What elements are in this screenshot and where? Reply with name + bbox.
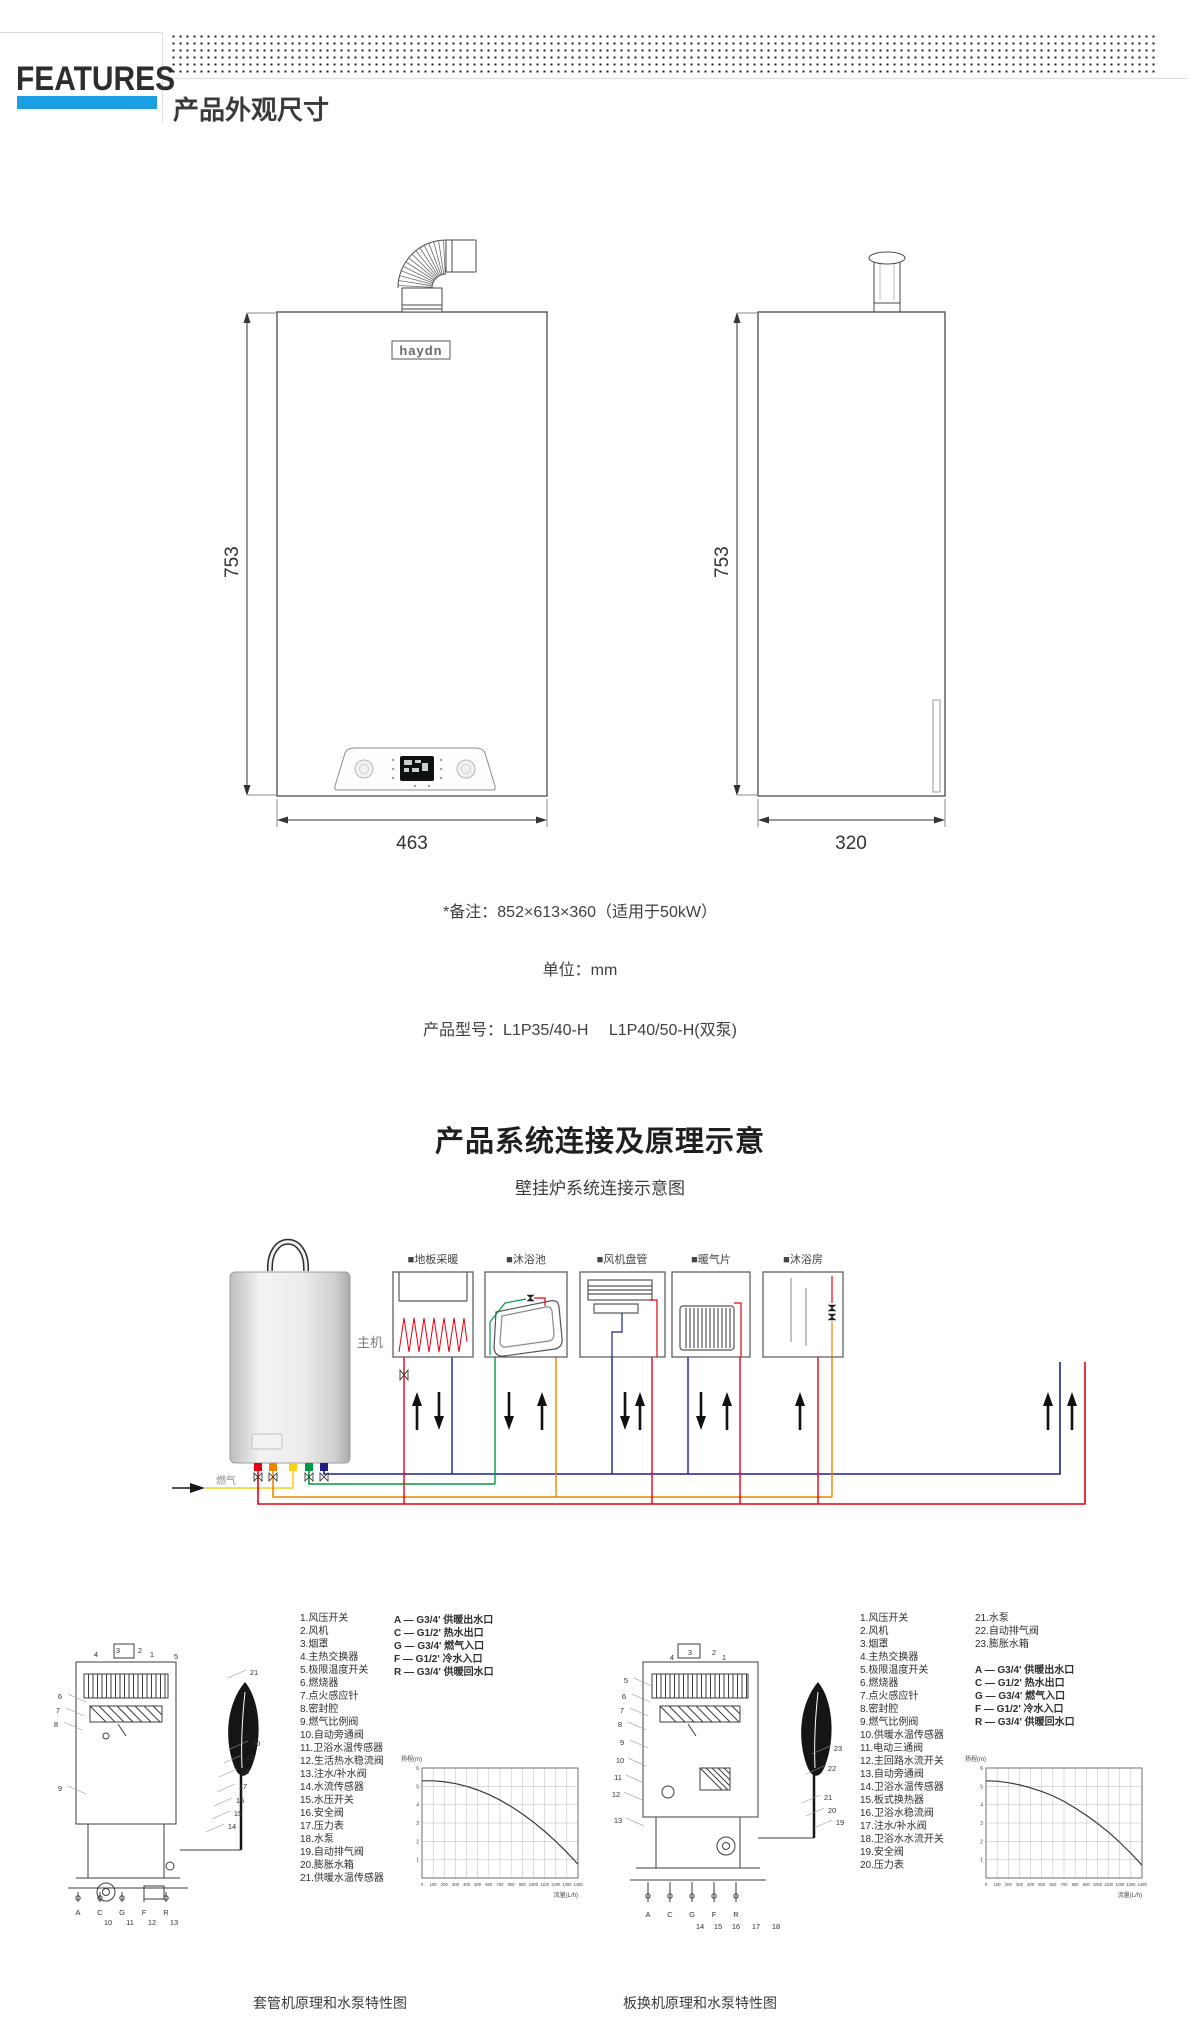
svg-text:2: 2 <box>138 1646 142 1655</box>
terminal-label-fan-coil: ■风机盘管 <box>597 1252 648 1266</box>
list-item: A — G3/4' 供暖出水口 <box>975 1664 1075 1677</box>
svg-text:4: 4 <box>94 1650 98 1659</box>
svg-text:20: 20 <box>252 1739 260 1748</box>
pump-curve-chart-left: 扬程(m)12345601002003004005006007008009001… <box>398 1752 588 1902</box>
svg-text:600: 600 <box>485 1882 493 1887</box>
svg-text:1400: 1400 <box>573 1882 583 1887</box>
list-item: 12.生活热水稳流阀 <box>300 1755 384 1768</box>
port-letters: ACGFR <box>75 1908 169 1917</box>
svg-text:7: 7 <box>620 1706 624 1715</box>
svg-text:5: 5 <box>174 1652 178 1661</box>
svg-text:F: F <box>712 1910 717 1919</box>
svg-text:8: 8 <box>54 1720 58 1729</box>
svg-text:6: 6 <box>58 1692 62 1701</box>
list-item: 7.点火感应针 <box>860 1690 944 1703</box>
list-item: 9.燃气比例阀 <box>300 1716 384 1729</box>
coaxial-boiler-schematic: ACGFR 123456789101112131415161718192021 <box>48 1640 298 1930</box>
svg-text:10: 10 <box>616 1756 624 1765</box>
svg-text:17: 17 <box>239 1782 247 1791</box>
list-item: 15.水压开关 <box>300 1794 384 1807</box>
svg-text:900: 900 <box>1083 1882 1091 1887</box>
svg-text:3: 3 <box>980 1821 983 1827</box>
list-item: 21.供暖水温传感器 <box>300 1872 384 1885</box>
three-way-valve-icon <box>662 1786 674 1798</box>
list-item: 4.主热交换器 <box>860 1651 944 1664</box>
gas-arrow-icon <box>190 1483 205 1493</box>
svg-text:700: 700 <box>1061 1882 1069 1887</box>
list-item: 16.安全阀 <box>300 1807 384 1820</box>
list-item: 13.自动旁通阀 <box>860 1768 944 1781</box>
callout-numbers: 123456789101112131415161718192021 <box>54 1646 260 1927</box>
svg-text:扬程(m): 扬程(m) <box>965 1755 986 1763</box>
svg-text:600: 600 <box>1049 1882 1057 1887</box>
flue-terminal-icon <box>869 252 905 312</box>
svg-text:20: 20 <box>828 1806 836 1815</box>
terminal-label-bath: ■沐浴池 <box>506 1253 546 1266</box>
svg-text:300: 300 <box>1016 1882 1024 1887</box>
svg-text:22: 22 <box>828 1764 836 1773</box>
left-parts-list: 1.风压开关2.风机3.烟罩4.主热交换器5.极限温度开关6.燃烧器7.点火感应… <box>300 1612 384 1885</box>
front-height-dimension: 753 <box>222 312 278 796</box>
svg-text:900: 900 <box>519 1882 527 1887</box>
front-width-label: 463 <box>396 833 428 854</box>
svg-text:2: 2 <box>712 1648 716 1657</box>
unit-note: 单位：mm <box>0 956 1160 980</box>
pump-icon <box>717 1837 735 1855</box>
halftone-dots-decor <box>170 33 1155 75</box>
svg-text:1: 1 <box>980 1858 983 1864</box>
list-item: 14.卫浴水温传感器 <box>860 1781 944 1794</box>
brand-logo-text: haydn <box>399 343 442 358</box>
list-item: 8.密封腔 <box>860 1703 944 1716</box>
svg-text:0: 0 <box>421 1882 424 1887</box>
terminal-boxes: ■地板采暖 ■沐浴池 ■风机盘管 ■暖气片 ■沐浴房 <box>393 1252 843 1357</box>
list-item: 19.自动排气阀 <box>300 1846 384 1859</box>
gauge-icon <box>166 1862 174 1870</box>
list-item: 5.极限温度开关 <box>300 1664 384 1677</box>
svg-text:8: 8 <box>618 1720 622 1729</box>
knob-left <box>355 760 373 778</box>
list-item: 22.自动排气阀 <box>975 1625 1039 1638</box>
section-title-dimensions: 产品外观尺寸 <box>173 90 329 127</box>
list-item: 3.烟罩 <box>300 1638 384 1651</box>
main-unit: 主机 <box>230 1242 383 1463</box>
list-item: 15.板式换热器 <box>860 1794 944 1807</box>
svg-text:18: 18 <box>772 1922 780 1930</box>
list-item: 9.燃气比例阀 <box>860 1716 944 1729</box>
svg-text:0: 0 <box>985 1882 988 1887</box>
list-item: 2.风机 <box>860 1625 944 1638</box>
svg-text:A: A <box>645 1910 650 1919</box>
valve-icons <box>254 1473 328 1481</box>
svg-text:100: 100 <box>430 1882 438 1887</box>
plate-boiler-schematic: ACGFR 1234567891011121314151617181920212… <box>608 1640 858 1930</box>
svg-text:6: 6 <box>622 1692 626 1701</box>
main-unit-label: 主机 <box>357 1335 383 1350</box>
knob-right <box>457 760 475 778</box>
svg-text:12: 12 <box>612 1790 620 1799</box>
list-item: 12.主回路水流开关 <box>860 1755 944 1768</box>
svg-text:14: 14 <box>228 1822 236 1831</box>
svg-text:1200: 1200 <box>551 1882 561 1887</box>
list-item: 23.膨胀水箱 <box>975 1638 1039 1651</box>
svg-text:21: 21 <box>250 1668 258 1677</box>
list-item: 18.水泵 <box>300 1833 384 1846</box>
svg-text:6: 6 <box>416 1766 419 1772</box>
list-item: 6.燃烧器 <box>300 1677 384 1690</box>
svg-text:1300: 1300 <box>1126 1882 1136 1887</box>
list-item: R — G3/4' 供暖回水口 <box>975 1716 1075 1729</box>
features-underline-bar <box>17 96 157 109</box>
section-subtitle-system: 壁挂炉系统连接示意图 <box>0 1174 1200 1199</box>
main-unit-display <box>252 1434 282 1449</box>
list-item: 20.压力表 <box>860 1859 944 1872</box>
svg-text:3: 3 <box>688 1648 692 1657</box>
svg-text:5: 5 <box>624 1676 628 1685</box>
right-parts-list: 1.风压开关2.风机3.烟罩4.主热交换器5.极限温度开关6.燃烧器7.点火感应… <box>860 1612 944 1872</box>
list-item: A — G3/4' 供暖出水口 <box>394 1614 494 1627</box>
front-width-dimension: 463 <box>277 799 547 854</box>
svg-text:2: 2 <box>980 1839 983 1845</box>
list-item: 1.风压开关 <box>300 1612 384 1625</box>
svg-text:7: 7 <box>56 1706 60 1715</box>
svg-text:18: 18 <box>241 1767 249 1776</box>
svg-text:15: 15 <box>234 1809 242 1818</box>
svg-text:23: 23 <box>834 1744 842 1753</box>
svg-text:16: 16 <box>236 1796 244 1805</box>
svg-text:F: F <box>142 1908 147 1917</box>
list-item: 20.膨胀水箱 <box>300 1859 384 1872</box>
svg-text:200: 200 <box>441 1882 449 1887</box>
section-title-system: 产品系统连接及原理示意 <box>0 1118 1200 1160</box>
list-item: G — G3/4' 燃气入口 <box>394 1640 494 1653</box>
svg-text:17: 17 <box>752 1922 760 1930</box>
svg-text:R: R <box>733 1910 739 1919</box>
right-parts-list-2: 21.水泵22.自动排气阀23.膨胀水箱 <box>975 1612 1039 1651</box>
svg-text:1100: 1100 <box>1104 1882 1114 1887</box>
terminal-box-bath <box>485 1272 567 1357</box>
list-item: 3.烟罩 <box>860 1638 944 1651</box>
dimension-drawings: haydn <box>0 180 1200 880</box>
flue-elbow-icon <box>398 240 476 312</box>
list-item: 21.水泵 <box>975 1612 1039 1625</box>
svg-text:4: 4 <box>670 1653 674 1662</box>
svg-text:10: 10 <box>104 1918 112 1927</box>
list-item: 18.卫浴水水流开关 <box>860 1833 944 1846</box>
svg-text:500: 500 <box>474 1882 482 1887</box>
remark-note: *备注：852×613×360（适用于50kW） <box>0 898 1160 922</box>
list-item: C — G1/2' 热水出口 <box>394 1627 494 1640</box>
terminal-box-radiator <box>672 1272 750 1357</box>
front-view-drawing: haydn <box>222 240 547 854</box>
control-panel <box>335 748 496 790</box>
svg-text:1000: 1000 <box>1093 1882 1103 1887</box>
list-item: R — G3/4' 供暖回水口 <box>394 1666 494 1679</box>
header-rule-bottom <box>162 78 1188 79</box>
terminal-box-shower <box>763 1272 843 1357</box>
list-item: 1.风压开关 <box>860 1612 944 1625</box>
list-item: 17.压力表 <box>300 1820 384 1833</box>
svg-text:800: 800 <box>508 1882 516 1887</box>
svg-text:13: 13 <box>614 1816 622 1825</box>
side-width-label: 320 <box>835 833 867 854</box>
svg-text:4: 4 <box>416 1803 419 1809</box>
svg-text:2: 2 <box>416 1839 419 1845</box>
front-height-label: 753 <box>222 546 243 578</box>
svg-text:400: 400 <box>1027 1882 1035 1887</box>
svg-text:1: 1 <box>150 1650 154 1659</box>
list-item: F — G1/2' 冷水入口 <box>394 1653 494 1666</box>
svg-text:300: 300 <box>452 1882 460 1887</box>
port-letters: ACGFR <box>645 1910 739 1919</box>
svg-text:200: 200 <box>1005 1882 1013 1887</box>
list-item: 8.密封腔 <box>300 1703 384 1716</box>
side-width-dimension: 320 <box>758 799 945 854</box>
svg-text:400: 400 <box>463 1882 471 1887</box>
pump-curve-chart-right: 扬程(m)12345601002003004005006007008009001… <box>962 1752 1152 1902</box>
list-item: 6.燃烧器 <box>860 1677 944 1690</box>
svg-text:700: 700 <box>497 1882 505 1887</box>
list-item: 10.自动旁通阀 <box>300 1729 384 1742</box>
svg-text:100: 100 <box>994 1882 1002 1887</box>
svg-text:1200: 1200 <box>1115 1882 1125 1887</box>
terminal-drop-pipes <box>404 1357 832 1504</box>
model-note: 产品型号：L1P35/40-H L1P40/50-H(双泵) <box>0 1016 1160 1040</box>
svg-text:11: 11 <box>614 1773 622 1782</box>
list-item: C — G1/2' 热水出口 <box>975 1677 1075 1690</box>
list-item: G — G3/4' 燃气入口 <box>975 1690 1075 1703</box>
svg-text:19: 19 <box>246 1753 254 1762</box>
left-port-legend: A — G3/4' 供暖出水口C — G1/2' 热水出口G — G3/4' 燃… <box>394 1614 494 1679</box>
svg-text:16: 16 <box>732 1922 740 1930</box>
brand-logo: haydn <box>392 341 450 359</box>
svg-text:15: 15 <box>714 1922 722 1930</box>
expansion-tank-icon <box>801 1682 831 1776</box>
svg-text:1100: 1100 <box>540 1882 550 1887</box>
side-view-drawing: 753 320 <box>712 252 945 854</box>
terminal-label-radiator: ■暖气片 <box>691 1252 731 1266</box>
right-port-legend: A — G3/4' 供暖出水口C — G1/2' 热水出口G — G3/4' 燃… <box>975 1664 1075 1729</box>
svg-text:扬程(m): 扬程(m) <box>401 1755 422 1763</box>
svg-text:19: 19 <box>836 1818 844 1827</box>
svg-text:800: 800 <box>1072 1882 1080 1887</box>
svg-text:C: C <box>97 1908 103 1917</box>
svg-text:C: C <box>667 1910 673 1919</box>
svg-text:A: A <box>75 1908 80 1917</box>
terminal-box-floor-heating <box>393 1272 473 1357</box>
side-height-dimension: 753 <box>712 312 759 796</box>
svg-text:5: 5 <box>416 1784 419 1790</box>
svg-text:21: 21 <box>824 1793 832 1802</box>
svg-text:500: 500 <box>1038 1882 1046 1887</box>
svg-text:3: 3 <box>416 1821 419 1827</box>
terminal-label-floor-heating: ■地板采暖 <box>408 1252 459 1266</box>
svg-text:4: 4 <box>980 1803 983 1809</box>
svg-text:流量(L/h): 流量(L/h) <box>1118 1891 1142 1899</box>
svg-text:14: 14 <box>696 1922 704 1930</box>
svg-text:1400: 1400 <box>1137 1882 1147 1887</box>
svg-text:1: 1 <box>722 1653 726 1662</box>
list-item: 5.极限温度开关 <box>860 1664 944 1677</box>
svg-text:1: 1 <box>416 1858 419 1864</box>
svg-text:1300: 1300 <box>562 1882 572 1887</box>
list-item: 11.电动三通阀 <box>860 1742 944 1755</box>
list-item: 14.水流传感器 <box>300 1781 384 1794</box>
gas-label: 燃气 <box>216 1474 236 1487</box>
svg-text:G: G <box>119 1908 125 1917</box>
svg-text:流量(L/h): 流量(L/h) <box>554 1891 578 1899</box>
svg-text:1000: 1000 <box>529 1882 539 1887</box>
svg-text:6: 6 <box>980 1766 983 1772</box>
svg-text:12: 12 <box>148 1918 156 1927</box>
list-item: 2.风机 <box>300 1625 384 1638</box>
svg-text:9: 9 <box>620 1738 624 1747</box>
gas-inlet: 燃气 <box>172 1474 236 1493</box>
list-item: 13.注水/补水阀 <box>300 1768 384 1781</box>
side-height-label: 753 <box>712 546 733 578</box>
svg-text:R: R <box>163 1908 169 1917</box>
svg-text:G: G <box>689 1910 695 1919</box>
features-heading: FEATURES <box>16 60 175 99</box>
terminal-label-shower: ■沐浴房 <box>783 1253 823 1266</box>
list-item: 11.卫浴水温传感器 <box>300 1742 384 1755</box>
header-rule-left <box>0 32 163 33</box>
svg-text:13: 13 <box>170 1918 178 1927</box>
list-item: 19.安全阀 <box>860 1846 944 1859</box>
boiler-connection-stubs <box>254 1463 328 1481</box>
right-diagram-caption: 板换机原理和水泵特性图 <box>600 1993 800 2013</box>
list-item: 4.主热交换器 <box>300 1651 384 1664</box>
svg-text:3: 3 <box>116 1646 120 1655</box>
list-item: 16.卫浴水稳流阀 <box>860 1807 944 1820</box>
svg-text:11: 11 <box>126 1918 134 1927</box>
svg-text:5: 5 <box>980 1784 983 1790</box>
flow-arrow-icons <box>412 1392 1077 1430</box>
product-spec-page: FEATURES 产品外观尺寸 haydn <box>0 0 1200 2028</box>
terminal-box-fan-coil <box>580 1272 665 1357</box>
list-item: 7.点火感应针 <box>300 1690 384 1703</box>
list-item: 17.注水/补水阀 <box>860 1820 944 1833</box>
list-item: 10.供暖水温传感器 <box>860 1729 944 1742</box>
list-item: F — G1/2' 冷水入口 <box>975 1703 1075 1716</box>
left-diagram-caption: 套管机原理和水泵特性图 <box>230 1993 430 2013</box>
system-connection-diagram: 主机 燃气 <box>0 1225 1200 1545</box>
svg-text:9: 9 <box>58 1784 62 1793</box>
